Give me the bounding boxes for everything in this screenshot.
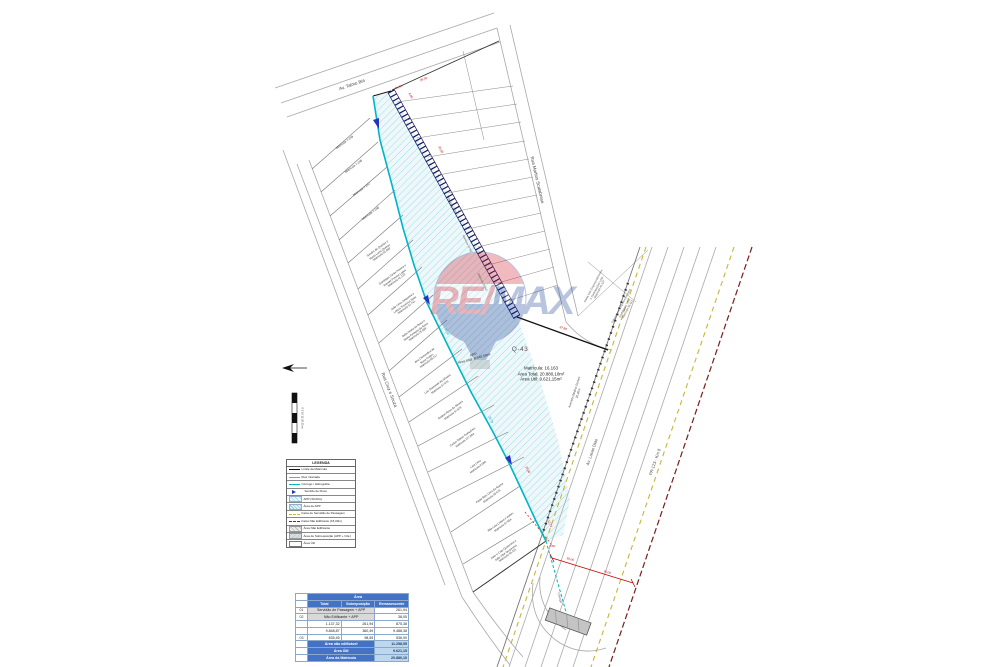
scale-bar [292,393,297,443]
legend-swatch-line-black [289,469,300,470]
table-title: Área [308,594,409,601]
table-row: 9.848,87 360,49 9.488,38 [296,627,409,634]
legend-item: Faixa Não Edificante (15,00m) [287,518,355,525]
legend-item: Sentido de Fluxo [287,489,355,496]
legend-item: Limite da Matrícula [287,467,355,474]
legend-item: APP (30,00m) [287,496,355,503]
table-row: 02 Não Edificante + APP 38,05 [296,614,409,621]
area-table: Área Total Sobreposição Remanescente 01 … [295,593,409,662]
legend-swatch-area-util [289,541,302,547]
col-sobreposicao: Sobreposição [341,600,375,607]
legend-item: Área Não Edificante [287,526,355,533]
legend-item: Área de APP [287,503,355,510]
remax-text: RE/MAX [430,279,578,323]
table-header-row: Total Sobreposição Remanescente [296,600,409,607]
legend-swatch-line-gray [289,477,300,478]
legend: LEGENDA Limite da Matrícula Rua / Estrad… [286,459,356,548]
table-row: 1.137,32 261,94 875,38 [296,621,409,628]
legend-item: Córrego / Hidrografia [287,481,355,488]
legend-title: LEGENDA [287,460,355,467]
survey-plan-page: RE/MAX Av. Talmo Bia Rua Martins Scalabr… [0,0,1000,667]
culvert [545,608,591,635]
legend-swatch-app [289,496,302,502]
table-summary-row: Área Útil 9.621,15 [296,648,409,655]
col-remanescente: Remanescente [375,600,409,607]
legend-item: Área Útil [287,540,355,546]
legend-swatch-flow-arrow [292,490,296,494]
legend-item: Faixa de Servidão de Passagem [287,511,355,518]
legend-swatch-sobreposicao [289,533,302,539]
legend-swatch-app-area [289,504,302,510]
north-arrow [282,364,307,372]
legend-swatch-nao-edificante-area [289,526,302,532]
legend-item: Área de Sobreposição (APP + N.E.) [287,533,355,540]
legend-item: Rua / Estrada [287,474,355,481]
flow-arrow [373,118,379,129]
legend-swatch-line-cyan [289,484,300,485]
roads [275,13,612,665]
legend-swatch-nao-edificante-faixa [289,521,300,522]
table-row: 01 Servidão de Passagem + APP 261,94 [296,607,409,614]
bottom-details [545,554,635,635]
plan-linework: RE/MAX [0,0,1000,667]
col-total: Total [308,600,342,607]
table-summary-row: Área não edificável 11.258,95 [296,641,409,648]
table-summary-row: Área da Matrícula 20.880,10 [296,655,409,662]
table-title-row: Área [296,594,409,601]
table-row: 03 635,45 98,55 536,90 [296,634,409,641]
legend-swatch-servidao [289,514,300,515]
